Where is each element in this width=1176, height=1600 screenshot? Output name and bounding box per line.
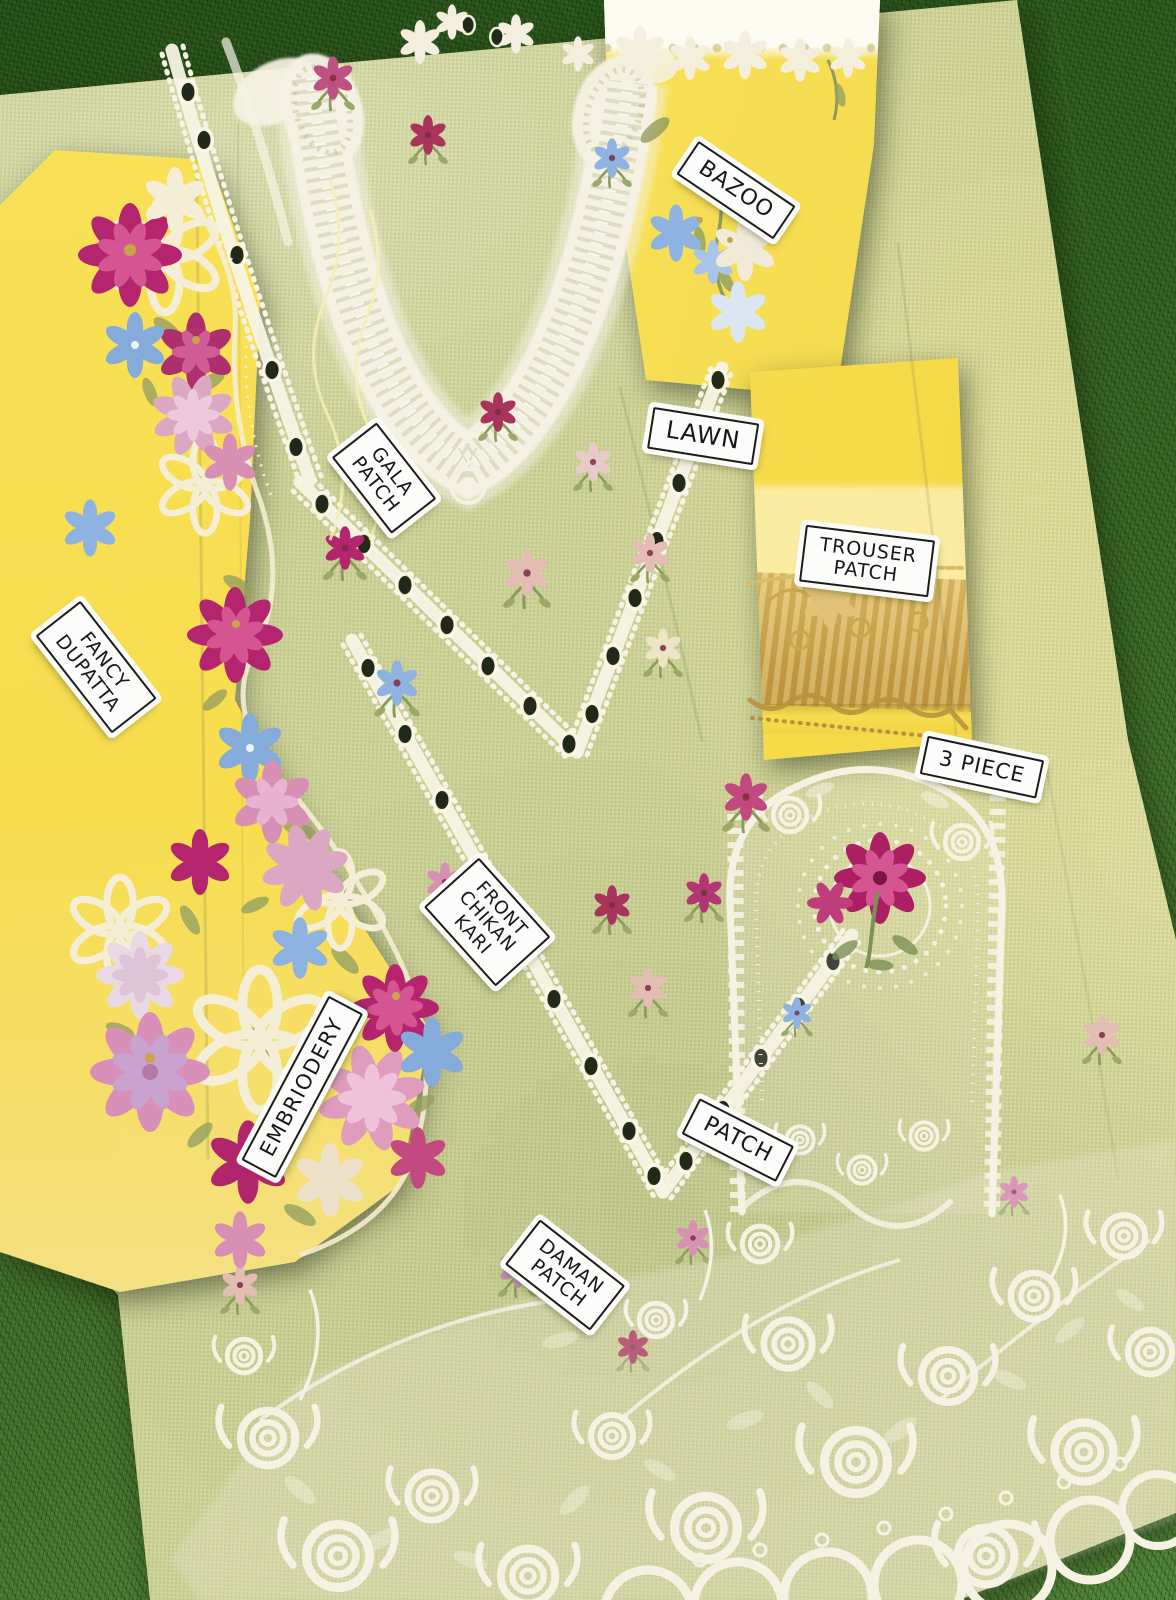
product-photo: BAZOO LAWN GALA PATCH FANCY DUPATTA TROU… [0, 0, 1176, 1600]
trouser-gold-lace-details [748, 568, 966, 740]
embroidery-overlay [0, 0, 1176, 1600]
daman-border-embroidery [170, 1140, 1176, 1600]
tag-lawn-label: LAWN [664, 417, 742, 454]
